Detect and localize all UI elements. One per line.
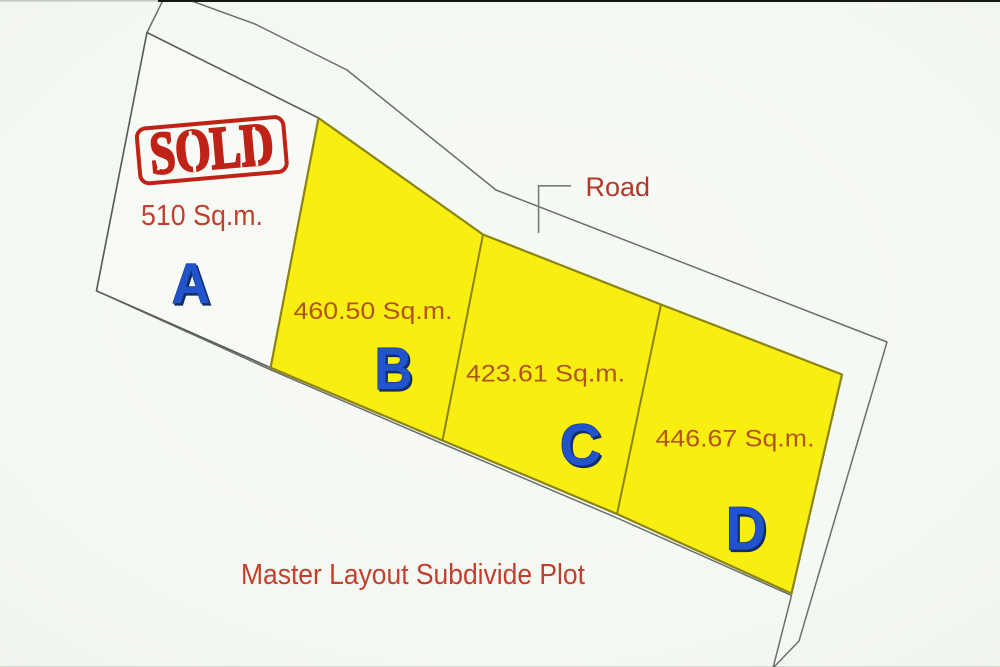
svg-text:510 Sq.m.: 510 Sq.m. — [141, 200, 263, 232]
svg-text:Master Layout Subdivide Plot: Master Layout Subdivide Plot — [241, 559, 585, 591]
svg-text:D: D — [726, 495, 767, 563]
svg-text:Road: Road — [586, 172, 651, 202]
svg-text:A: A — [172, 252, 211, 316]
svg-text:423.61 Sq.m.: 423.61 Sq.m. — [466, 360, 625, 387]
svg-text:460.50 Sq.m.: 460.50 Sq.m. — [294, 298, 453, 325]
svg-text:B: B — [375, 336, 413, 402]
svg-text:446.67 Sq.m.: 446.67 Sq.m. — [656, 425, 815, 452]
svg-text:C: C — [560, 413, 602, 478]
